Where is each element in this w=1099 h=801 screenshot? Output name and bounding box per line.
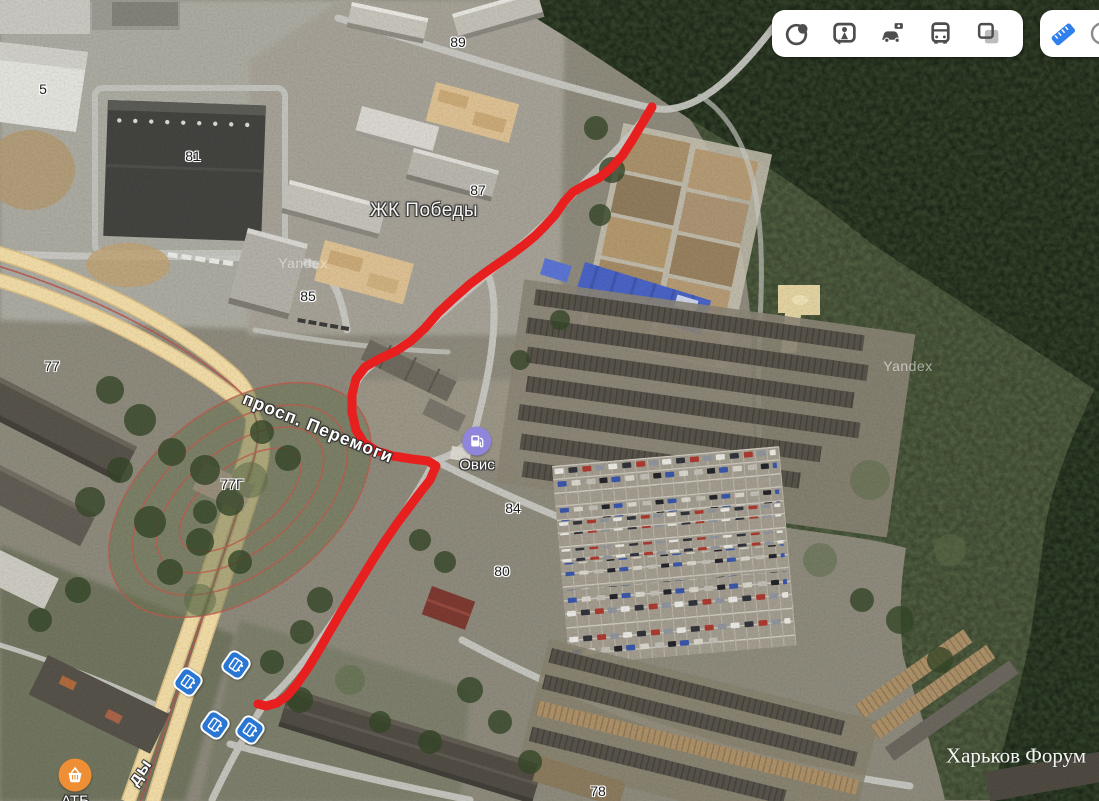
poi-store-atb[interactable]: АТБ bbox=[59, 759, 92, 801]
partial-circle-icon bbox=[1086, 20, 1099, 47]
transit-button[interactable] bbox=[916, 10, 964, 57]
poi-gas-station[interactable]: Овис bbox=[459, 427, 495, 474]
panorama-circle-icon bbox=[783, 20, 810, 47]
street-view-button[interactable] bbox=[820, 10, 868, 57]
ruler-button[interactable] bbox=[1040, 10, 1086, 57]
street-view-icon bbox=[831, 20, 858, 47]
map-canvas[interactable] bbox=[0, 0, 1099, 801]
panoramas-button[interactable] bbox=[772, 10, 820, 57]
ruler-icon bbox=[1048, 19, 1078, 49]
shopping-basket-icon bbox=[59, 759, 92, 792]
poi-gas-label: Овис bbox=[459, 457, 495, 474]
layers-button[interactable] bbox=[964, 10, 1012, 57]
map-layers-toolbar bbox=[772, 10, 1023, 57]
fuel-pump-icon bbox=[462, 427, 491, 456]
more-tools-button[interactable] bbox=[1086, 10, 1099, 57]
car-camera-icon bbox=[879, 20, 906, 47]
poi-store-label: АТБ bbox=[61, 793, 89, 801]
layers-icon bbox=[975, 20, 1002, 47]
map-app: Yandex Yandex ЖК Победы просп. Перемоги … bbox=[0, 0, 1099, 801]
bus-icon bbox=[927, 20, 954, 47]
measure-toolbar bbox=[1040, 10, 1099, 57]
road-events-button[interactable] bbox=[868, 10, 916, 57]
